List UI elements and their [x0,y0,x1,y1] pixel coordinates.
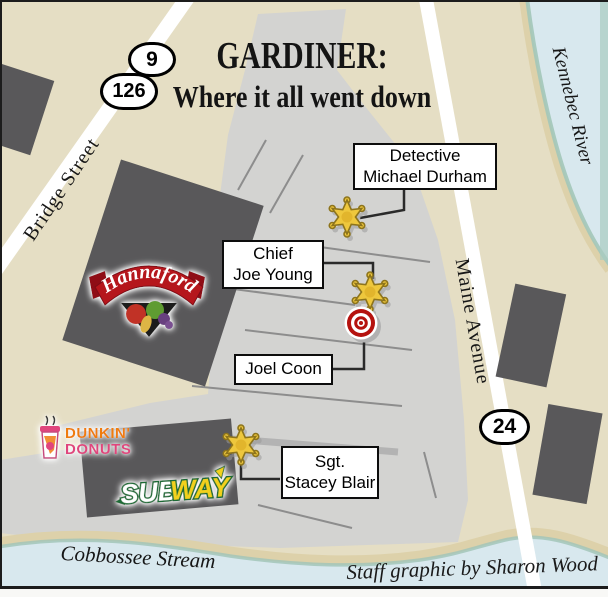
callout-line: Joel Coon [236,359,331,380]
callout-detective-michael-durham: Detective Michael Durham [353,143,497,190]
map-frame-top [0,0,608,2]
callout-line: Detective [355,146,495,167]
dunkin-logo-line1: DUNKIN' [65,425,130,442]
route-shield-9: 9 [128,42,176,77]
route-shield-24: 24 [479,409,530,445]
callout-chief-joe-young: Chief Joe Young [222,240,324,289]
route-shield-126: 126 [100,73,158,110]
route-shield-24-number: 24 [493,415,516,439]
callout-line: Michael Durham [355,167,495,188]
callout-line: Sgt. [283,452,377,473]
map-title: GARDINER: Where it all went down [140,34,464,115]
dunkin-logo-line2: DONUTS [65,441,131,458]
callout-line: Stacey Blair [283,473,377,494]
subway-logo-way: WAY [169,472,233,506]
map-title-line1: GARDINER: [176,34,429,78]
callout-line: Chief [224,244,322,265]
page-margin-bottom [0,589,608,597]
callout-sgt-stacey-blair: Sgt. Stacey Blair [281,446,379,499]
callout-line: Joe Young [224,265,322,286]
route-shield-126-number: 126 [112,80,145,103]
map-title-line2: Where it all went down [166,79,438,115]
route-shield-9-number: 9 [146,48,158,72]
callout-joel-coon: Joel Coon [234,354,333,385]
map-frame-left [0,0,2,589]
gardiner-map: Hannaford DUNKIN' DONUTS SUB WAY [0,0,608,597]
